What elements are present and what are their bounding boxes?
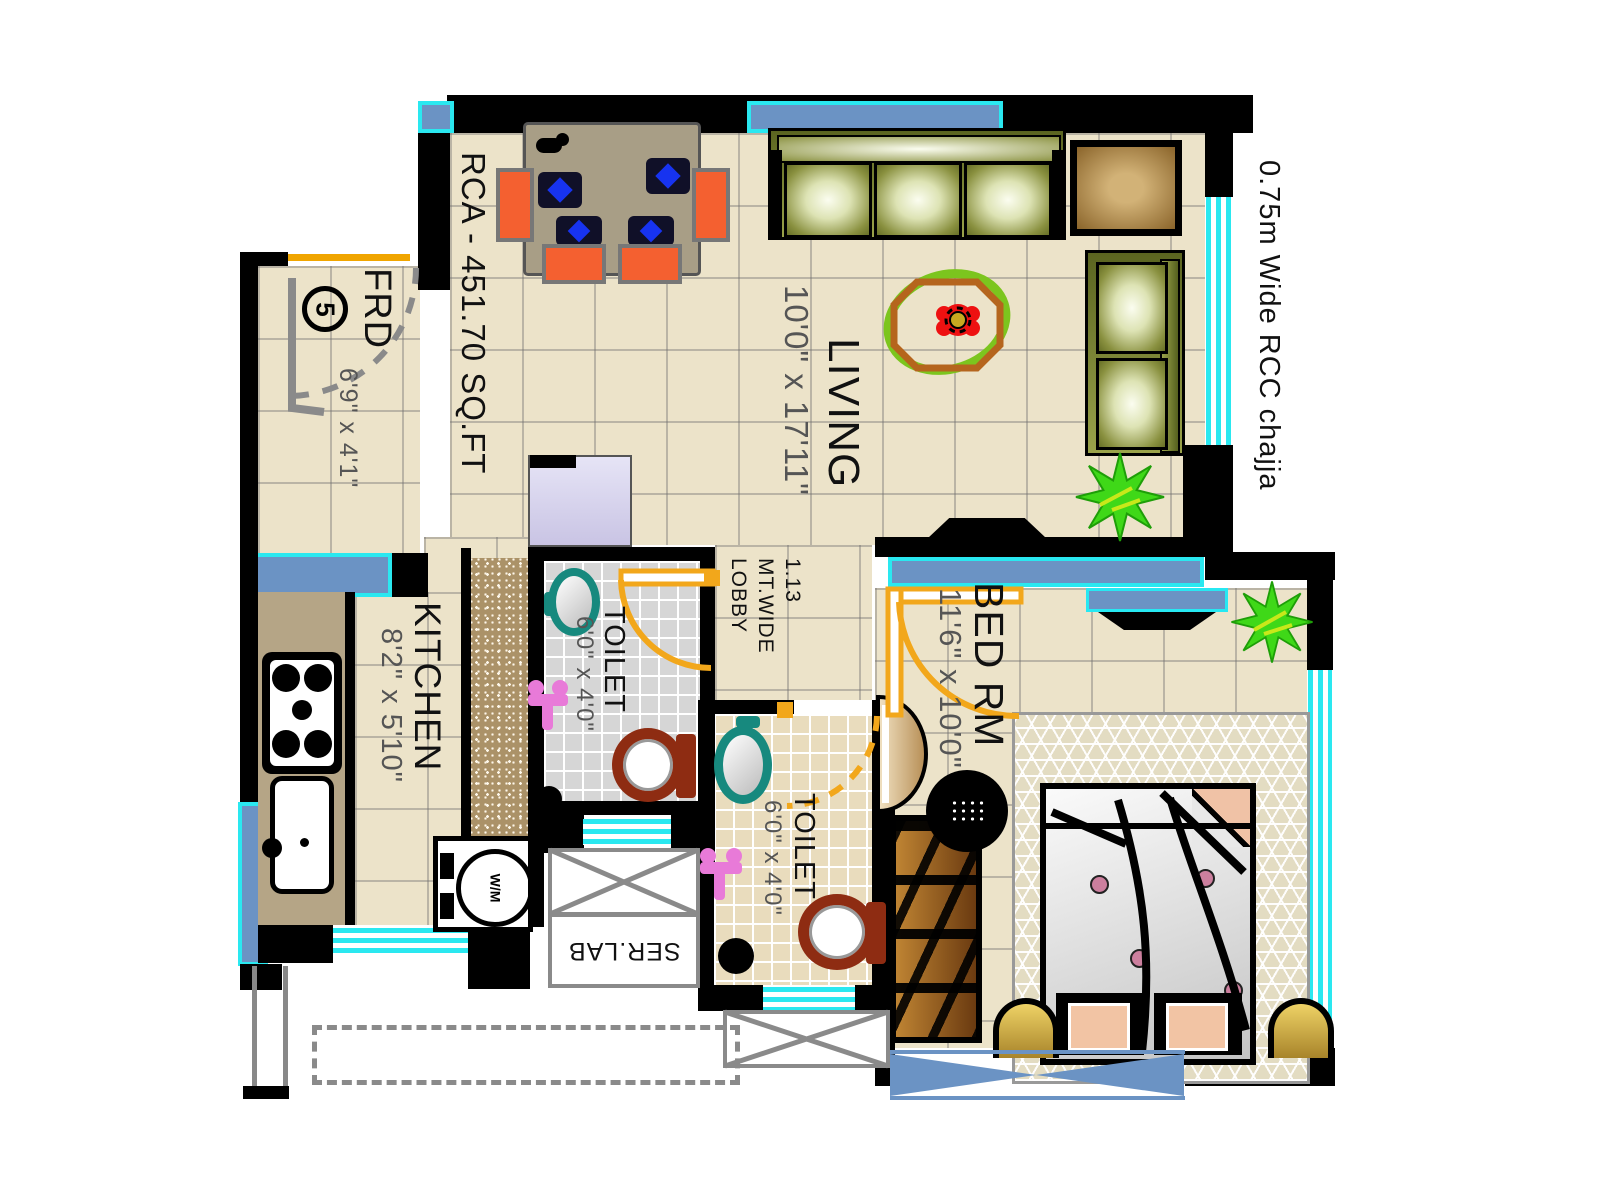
placemat-3 <box>556 216 602 246</box>
kitchen-bottom-wall-left <box>258 925 333 963</box>
bedroom-right-window <box>1308 670 1332 1050</box>
placemat-1 <box>538 172 582 208</box>
kitchen-sink <box>270 776 334 894</box>
living-label: LIVING <box>820 338 868 518</box>
sofa-cushion-3 <box>964 162 1052 238</box>
bedroom-dim: 11'6" x 10'0" <box>934 588 968 863</box>
railing-base <box>243 1086 289 1099</box>
bed-sheet-line <box>1046 823 1250 829</box>
burner <box>304 664 332 692</box>
bedroom-label: BED RM <box>966 582 1012 872</box>
tv-shelf-bedroom <box>1086 588 1228 612</box>
kitchen-top-wall-black <box>392 553 428 597</box>
placemat-4 <box>628 216 674 246</box>
bedroom-right-wall-top <box>1307 580 1333 670</box>
counter-edge <box>345 592 355 925</box>
kitchen-bottom-window <box>333 928 468 958</box>
chajja-note-text: 0.75m Wide RCC chajja <box>1251 160 1285 490</box>
kitchen-dim: 8'2" x 5'10" <box>375 628 407 868</box>
washing-machine-label: W/M <box>487 874 503 903</box>
toilet1-basin-tap <box>544 592 556 616</box>
toilet2-bottom-window <box>763 987 855 1011</box>
service-duct-box-2 <box>723 1010 890 1068</box>
placemat-2 <box>646 158 690 194</box>
washing-machine-drum: W/M <box>456 849 534 927</box>
kitchen-bottom-wall-right <box>468 925 530 989</box>
balcony-railing <box>252 966 288 1086</box>
bedroom-partition-window <box>888 557 1204 587</box>
service-slab-label: SER.LAB <box>568 936 681 965</box>
corner-table <box>1070 140 1182 236</box>
washing-machine: W/M <box>433 836 533 932</box>
top-corner-window <box>418 101 454 133</box>
cat-figurine-head <box>556 133 569 146</box>
toilet1-label: TOILET <box>598 606 630 756</box>
living-dim: 10'0" x 17'11" <box>779 285 815 555</box>
toilet1-left-wall <box>528 547 544 815</box>
burner <box>304 730 332 758</box>
sink-drain <box>300 838 309 847</box>
service-slab-box: SER.LAB <box>548 913 700 988</box>
toilet2-bottom-wall-left <box>698 985 763 1011</box>
dining-chair-right <box>692 168 730 242</box>
bedroom-top-wall-right <box>1205 552 1335 580</box>
living-right-wall-top <box>1205 133 1233 197</box>
toilet2-label: TOILET <box>788 793 820 943</box>
sofa-cushion-2 <box>874 162 962 238</box>
foyer-label: FRD <box>356 268 398 378</box>
dining-chair-left <box>496 168 534 242</box>
bed-fold-corner <box>1192 789 1250 847</box>
foyer-living-divider <box>418 133 450 290</box>
duct-shaft <box>528 455 632 547</box>
sofa-armrest-right <box>1052 150 1066 240</box>
burner <box>272 730 300 758</box>
bed <box>1040 783 1256 1065</box>
kitchen-left-wall <box>240 553 258 803</box>
toilet2-dim: 6'0" x 4'0" <box>759 800 786 930</box>
sink-tap <box>262 838 282 858</box>
sofa2-cushion-2 <box>1096 358 1168 450</box>
burner <box>272 664 300 692</box>
foyer-top-stub <box>240 252 288 266</box>
foyer-left-wall <box>240 252 258 553</box>
dining-chair-bottom-1 <box>542 244 606 284</box>
bedside-table-left <box>993 998 1059 1058</box>
kitchen-top-window <box>250 553 392 597</box>
bed-dot <box>1090 875 1109 894</box>
chajja-outline <box>312 1025 740 1085</box>
bedroom-top-wall <box>875 537 1207 557</box>
floor-plan: SER.LAB W/M <box>0 0 1600 1200</box>
gas-stove <box>262 652 342 774</box>
service-duct-box-1 <box>548 848 700 916</box>
bed-dot <box>1130 949 1149 968</box>
sofa-armrest-left <box>768 150 782 240</box>
lobby-label: 1.13 MT.WIDE LOBBY <box>722 558 806 693</box>
bedside-table-right <box>1268 998 1334 1058</box>
sofa-cushion-1 <box>784 162 872 238</box>
toilet2-floor-trap <box>718 938 754 974</box>
toilet2-top-wall <box>714 700 794 714</box>
duct-shaft-notch <box>530 455 576 468</box>
bed-pillow-right <box>1154 993 1242 1055</box>
kitchen-label: KITCHEN <box>406 602 448 812</box>
sofa2-cushion-1 <box>1096 262 1168 354</box>
door-number-badge: 5 <box>302 286 348 332</box>
bed-dot <box>1196 869 1215 888</box>
toilet1-top-wall <box>544 547 700 561</box>
toilet1-floor-trap <box>536 786 562 812</box>
foyer-dim: 6'9" x 4'1" <box>332 368 362 538</box>
dining-chair-bottom-2 <box>618 244 682 284</box>
living-right-window-chajja <box>1206 197 1232 445</box>
door-number: 5 <box>310 302 341 316</box>
entrance-threshold <box>288 254 410 261</box>
toilet2-basin-tap <box>736 716 760 728</box>
area-note-text: RCA - 451.70 SQ.FT <box>452 152 492 582</box>
toilet1-dim: 6'0" x 4'0" <box>571 616 598 746</box>
toilet2-basin <box>714 726 772 804</box>
toilet1-bottom-window <box>583 819 673 845</box>
toilet2-left-wall <box>698 700 714 1010</box>
bed-pillow-left <box>1056 993 1144 1055</box>
